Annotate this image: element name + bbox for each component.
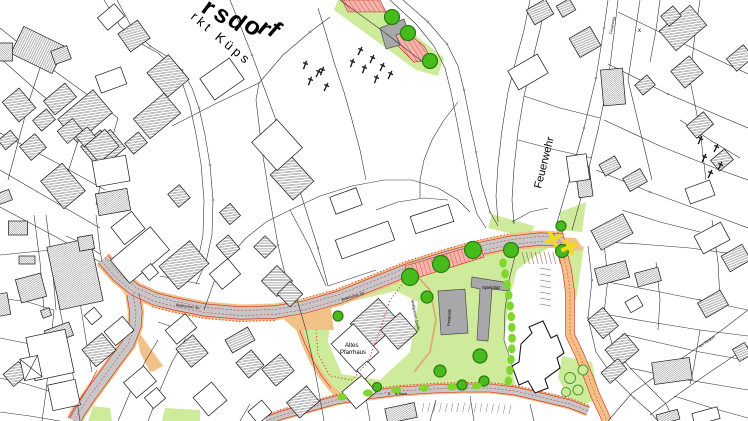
svg-text:Spielplatz: Spielplatz (482, 285, 500, 290)
svg-text:Altes: Altes (345, 343, 358, 349)
svg-text:Festplatz: Festplatz (446, 309, 452, 326)
svg-text:Pfarrhaus: Pfarrhaus (340, 350, 366, 356)
svg-text:x: x (638, 28, 641, 34)
